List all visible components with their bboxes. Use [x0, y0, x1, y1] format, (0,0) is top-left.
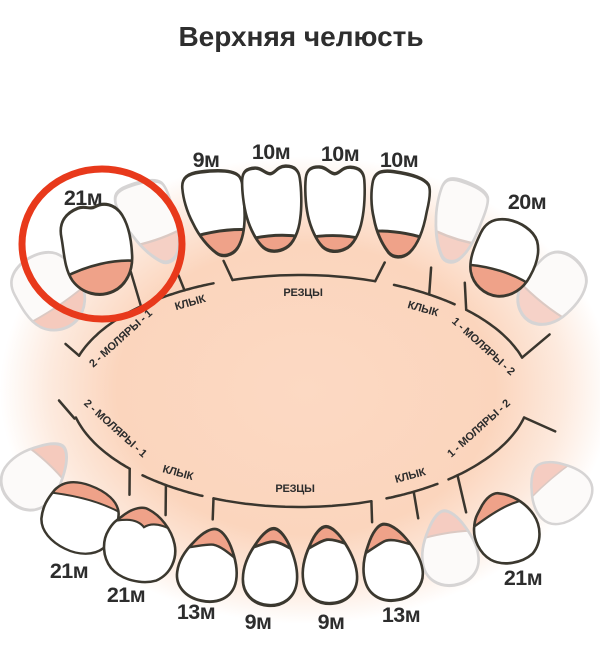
svg-text:21м: 21м: [504, 566, 542, 590]
svg-text:9м: 9м: [318, 610, 345, 634]
svg-text:9м: 9м: [245, 610, 272, 634]
svg-text:РЕЗЦЫ: РЕЗЦЫ: [275, 483, 315, 495]
svg-text:10м: 10м: [321, 142, 359, 166]
svg-text:21м: 21м: [107, 583, 145, 607]
svg-text:13м: 13м: [177, 600, 215, 624]
svg-text:9м: 9м: [193, 148, 220, 172]
svg-text:10м: 10м: [252, 140, 290, 164]
svg-text:21м: 21м: [64, 186, 102, 210]
svg-text:20м: 20м: [508, 190, 546, 214]
svg-text:РЕЗЦЫ: РЕЗЦЫ: [283, 287, 323, 299]
svg-text:10м: 10м: [380, 148, 418, 172]
svg-text:13м: 13м: [382, 603, 420, 627]
svg-text:21м: 21м: [50, 559, 88, 583]
svg-text:Верхняя челюсть: Верхняя челюсть: [178, 21, 423, 52]
